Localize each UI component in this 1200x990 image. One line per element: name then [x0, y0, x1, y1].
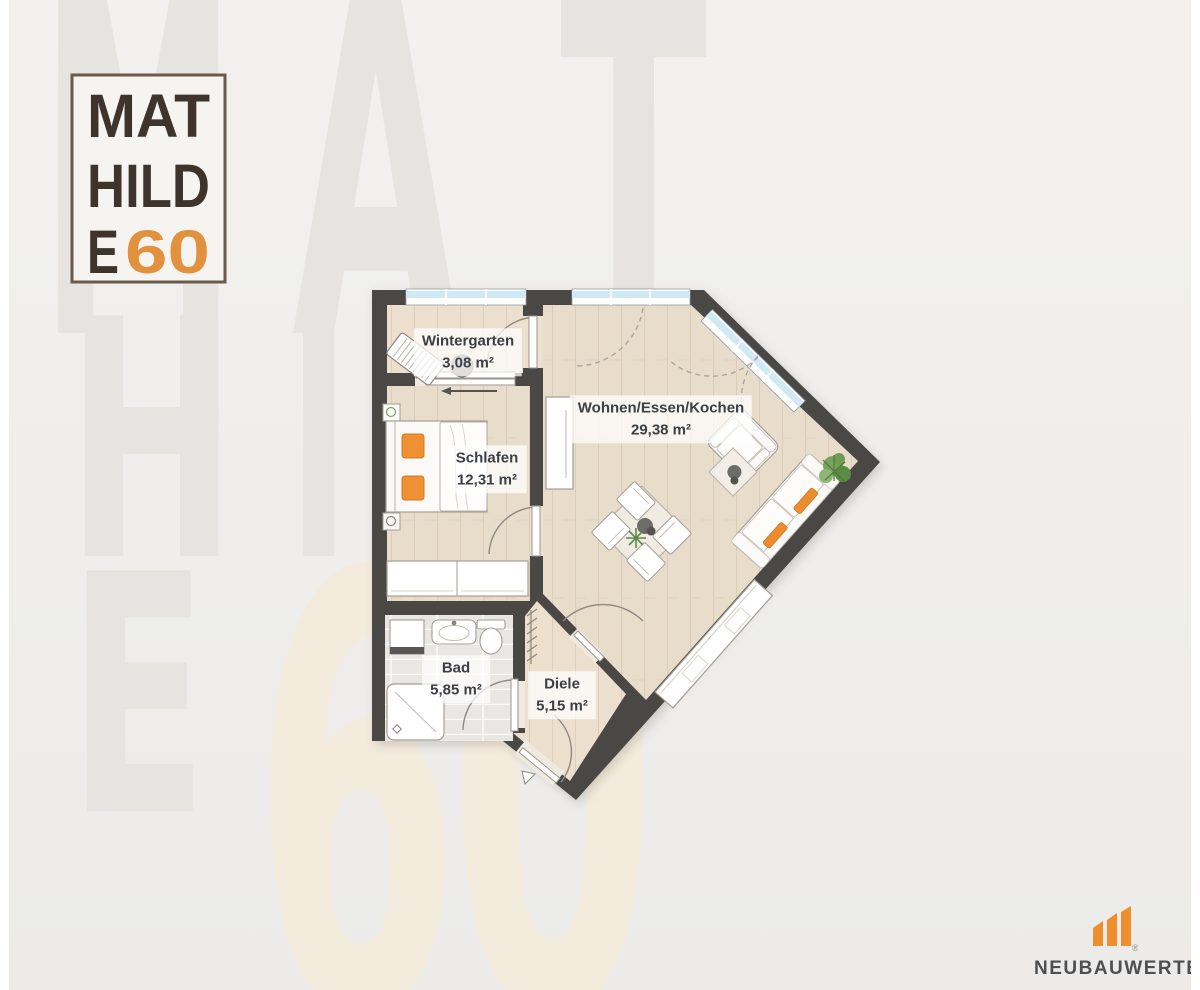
logo-line-2: HILD: [87, 152, 210, 220]
room-label-wintergarten: Wintergarten 3,08 m²: [414, 328, 522, 376]
washing-machine: [390, 620, 424, 654]
pillow-orange-2: [402, 476, 424, 500]
brand-logo-icon: ®: [1090, 906, 1138, 952]
logo-line-3-dark: E: [87, 218, 119, 284]
logo-line-3-accent: 60: [125, 218, 210, 284]
room-area: 29,38 m²: [578, 419, 744, 441]
room-area: 5,85 m²: [430, 679, 482, 701]
table-plant-icon: [626, 528, 646, 548]
room-name: Schlafen: [456, 447, 519, 469]
room-label-diele: Diele 5,15 m²: [528, 671, 596, 719]
brand-block: ® NEUBAUWERTE: [1034, 906, 1194, 980]
entrance-marker-icon: [522, 771, 535, 784]
room-name: Bad: [430, 657, 482, 679]
room-name: Wohnen/Essen/Kochen: [578, 397, 744, 419]
room-area: 5,15 m²: [536, 695, 588, 717]
room-label-bad: Bad 5,85 m²: [422, 655, 490, 703]
room-area: 12,31 m²: [456, 469, 519, 491]
project-logo: MAT HILD E 60: [70, 73, 227, 284]
nightstand-top: [383, 404, 400, 421]
room-label-schlafen: Schlafen 12,31 m²: [448, 445, 527, 493]
window-top-wohnen: [572, 289, 690, 305]
window-top-wintergarten: [406, 289, 526, 305]
room-name: Diele: [536, 673, 588, 695]
page-margin-right: [1191, 0, 1200, 990]
registered-mark: ®: [1132, 943, 1138, 952]
nightstand-bottom: [383, 513, 400, 530]
logo-line-1: MAT: [87, 82, 210, 150]
brand-name: NEUBAUWERTE: [1034, 958, 1194, 980]
washbasin: [432, 620, 476, 644]
room-name: Wintergarten: [422, 330, 514, 352]
pillow-orange-1: [402, 434, 424, 458]
poster-canvas: M A T H I E 6 0 MAT HILD E 60: [0, 0, 1200, 990]
room-area: 3,08 m²: [422, 352, 514, 374]
page-margin-left: [0, 0, 9, 990]
room-label-wohnen: Wohnen/Essen/Kochen 29,38 m²: [570, 395, 752, 443]
wardrobe: [387, 561, 528, 596]
